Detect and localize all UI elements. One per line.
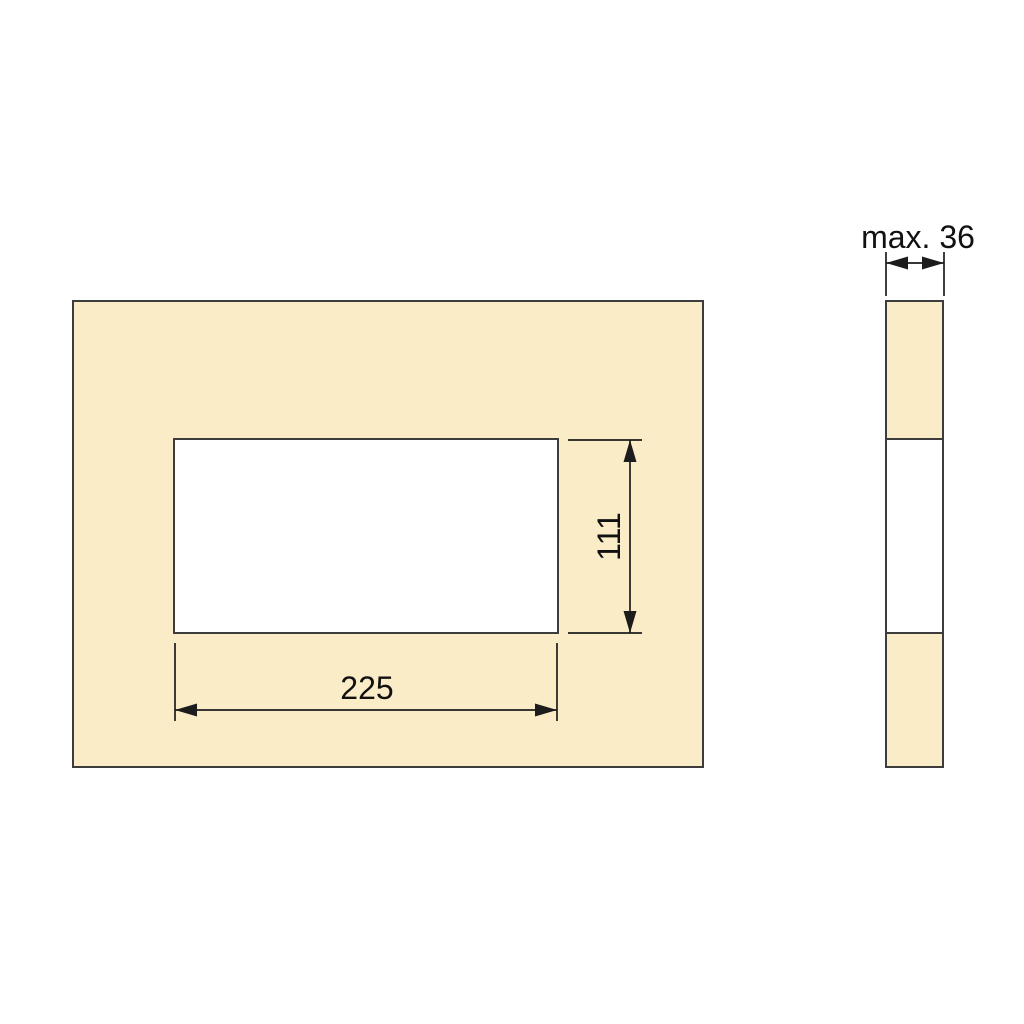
dimension-panel-thickness: max. 36 [861,219,975,296]
technical-drawing-canvas: 225 111 max. 36 [0,0,1024,1024]
height-dimension-label: 111 [591,512,627,561]
front-view-cutout [174,439,558,633]
arrowhead-left-icon [886,257,908,270]
width-dimension-label: 225 [340,670,393,706]
arrowhead-right-icon [922,257,944,270]
side-view [886,301,943,767]
side-view-cutout-section [886,439,943,633]
drawing-page: 225 111 max. 36 [0,0,1024,1024]
thickness-dimension-label: max. 36 [861,219,975,255]
